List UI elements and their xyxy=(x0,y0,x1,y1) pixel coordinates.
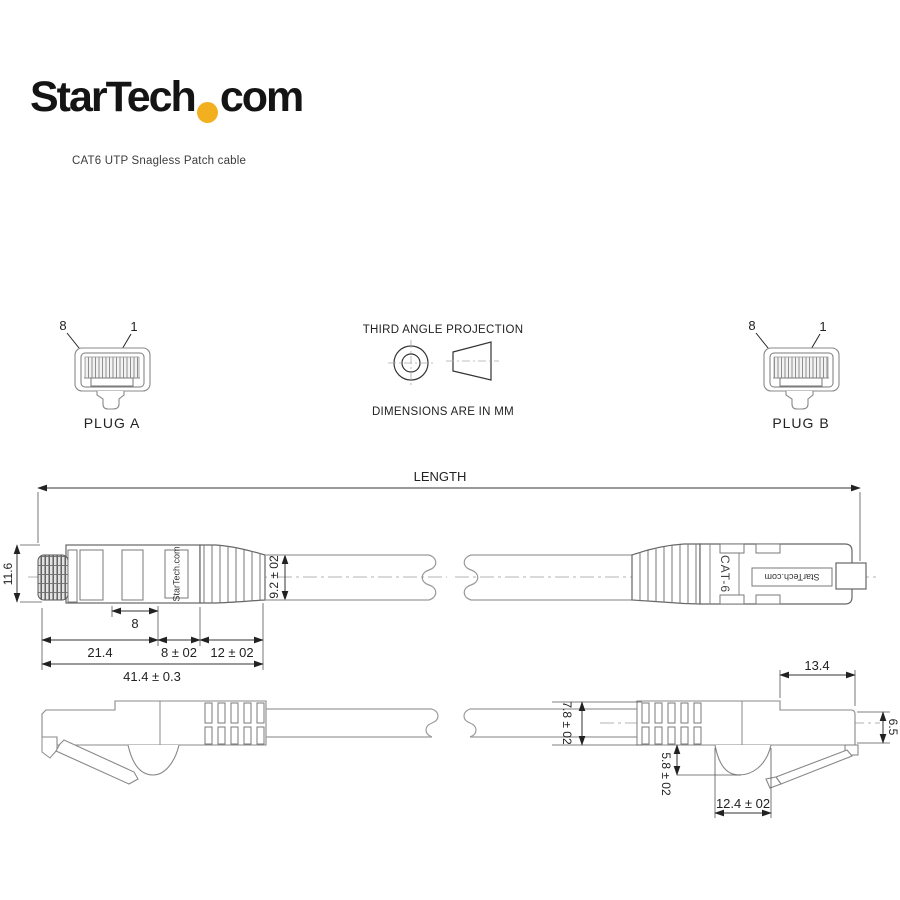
cable-break-right xyxy=(464,555,478,600)
side-view-right-connector: CAT-6 StarTech.com xyxy=(632,544,866,604)
dim-front-length: 13.4 xyxy=(780,658,855,706)
logo-text-start: StarTech xyxy=(30,76,195,119)
plug-a-caption: PLUG A xyxy=(84,415,141,431)
left-latch-hinge xyxy=(42,737,57,758)
startech-logo: StarTechcom xyxy=(30,76,302,119)
right-latch xyxy=(776,750,852,784)
dim-boot-od-label: 9.2 ± 02 xyxy=(267,555,281,599)
cable-break-bottom-left xyxy=(426,709,438,737)
bottom-view-left-connector xyxy=(42,701,438,784)
plug-b-front-view: 8 1 PLUG B xyxy=(730,300,870,440)
plug-b-pin1-label: 1 xyxy=(819,319,826,334)
dim-boot2-label: 12 ± 02 xyxy=(210,645,253,660)
dim-plug-height: 11.6 xyxy=(1,545,42,602)
cable-break-bottom-right xyxy=(464,709,476,737)
rj45-contacts-left xyxy=(38,555,68,600)
dim-tip-height-label: 6.5 xyxy=(886,719,900,736)
right-snag-tab xyxy=(715,745,771,775)
dim-front-length-label: 13.4 xyxy=(804,658,829,673)
side-view-left-connector: StarTech.com xyxy=(38,545,265,603)
plug-a-front-view: 8 1 PLUG A xyxy=(40,300,180,440)
left-boot-ribs xyxy=(200,545,265,603)
dim-body-length-label: 21.4 xyxy=(87,645,112,660)
projection-donut-symbol xyxy=(388,340,434,386)
cable-dimension-drawing: LENGTH StarTech.com xyxy=(0,440,900,900)
dim-plug-height-label: 11.6 xyxy=(1,562,15,585)
dim-tip-height: 6.5 xyxy=(857,712,900,743)
right-boot-ribs xyxy=(632,544,700,604)
plug-a-pin1-label: 1 xyxy=(130,319,137,334)
dim-boot1-label: 8 ± 02 xyxy=(161,645,197,660)
left-latch xyxy=(56,740,138,784)
left-connector-dimensions: 8 21.4 8 ± 02 12 ± 02 41.4 ± 0.3 xyxy=(42,603,263,684)
plug-a-connector-drawing xyxy=(75,348,150,409)
third-angle-projection-block: THIRD ANGLE PROJECTION DIMENSIONS ARE IN… xyxy=(355,315,535,425)
projection-cone-symbol xyxy=(446,342,499,380)
cable-break-left xyxy=(422,555,436,600)
projection-title: THIRD ANGLE PROJECTION xyxy=(363,324,524,336)
logo-text-end: com xyxy=(220,76,302,119)
dim-tab-width-label: 12.4 ± 02 xyxy=(716,796,770,811)
rj45-tab-right xyxy=(836,563,866,589)
left-snag-tab xyxy=(128,745,179,775)
dim-overall-label: 41.4 ± 0.3 xyxy=(123,669,181,684)
plug-b-pin8-label: 8 xyxy=(748,318,755,333)
dim-window-label: 8 xyxy=(131,616,138,631)
dim-tab-depth-label: 5.8 ± 02 xyxy=(659,752,673,796)
technical-drawing-page: StarTechcom CAT6 UTP Snagless Patch cabl… xyxy=(0,0,900,900)
plug-a-pin8-label: 8 xyxy=(59,318,66,333)
dim-cable-od-label: 7.8 ± 02 xyxy=(560,701,574,745)
right-connector-brand-mark: StarTech.com xyxy=(764,572,819,582)
plug-b-connector-drawing xyxy=(764,348,839,409)
cat6-marking: CAT-6 xyxy=(718,555,732,593)
left-connector-brand-mark: StarTech.com xyxy=(172,546,182,601)
units-note: DIMENSIONS ARE IN MM xyxy=(372,406,514,418)
length-label: LENGTH xyxy=(414,469,467,484)
plug-b-caption: PLUG B xyxy=(772,415,829,431)
dim-boot-od: 9.2 ± 02 xyxy=(267,555,285,600)
product-subtitle: CAT6 UTP Snagless Patch cable xyxy=(72,155,246,167)
cable-side-view xyxy=(265,555,632,600)
logo-dot-icon xyxy=(197,102,218,123)
